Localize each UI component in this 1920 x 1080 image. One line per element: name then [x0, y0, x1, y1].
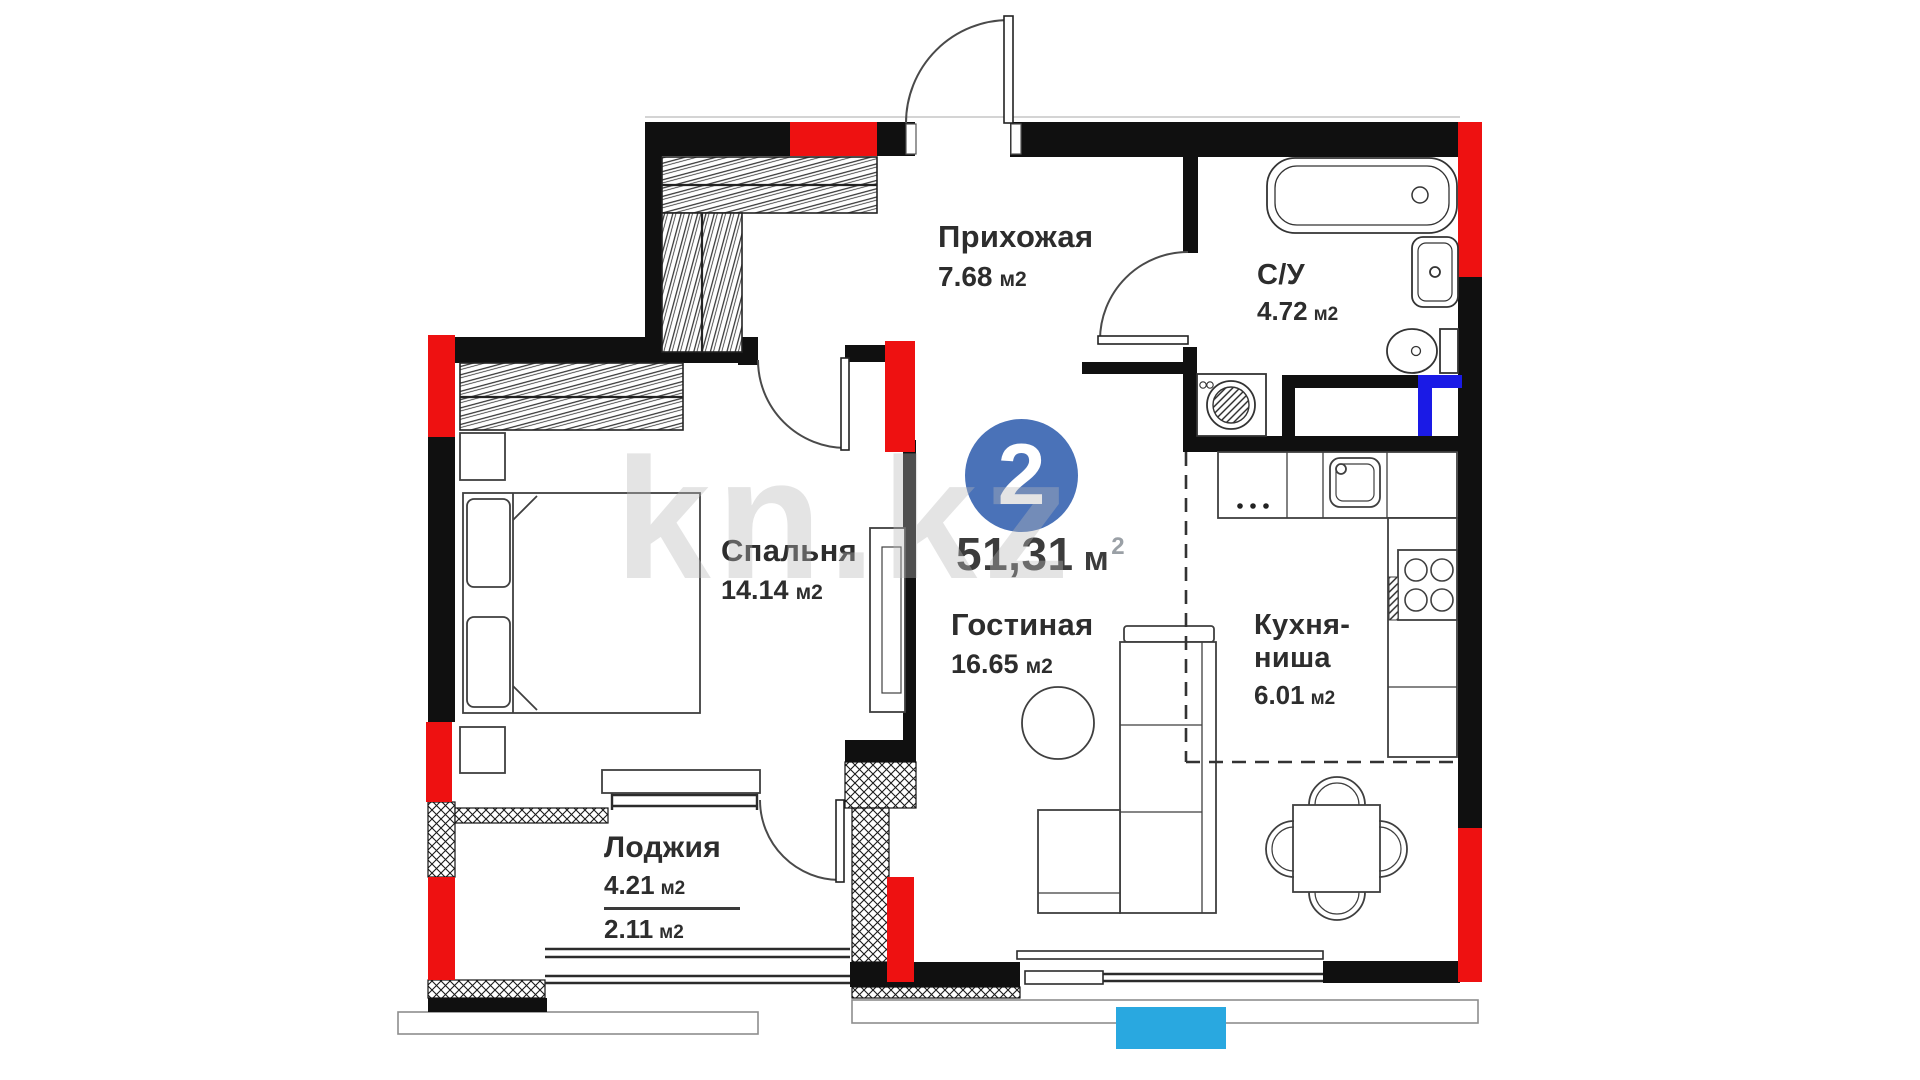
- room-area-unit: м2: [796, 581, 823, 604]
- total-area-value: 51,31: [956, 528, 1074, 580]
- wardrobes: [460, 157, 877, 430]
- room-area: 6.01: [1254, 680, 1305, 710]
- room-area-unit: м2: [1311, 688, 1336, 709]
- knob-dots: [1237, 503, 1269, 509]
- total-area-unit: м: [1084, 540, 1110, 578]
- room-area: 4.72: [1257, 296, 1308, 326]
- room-name: Гостиная: [951, 607, 1094, 643]
- room-name: Лоджия: [604, 831, 740, 866]
- window-bench: [602, 770, 760, 793]
- bathroom-sink: [1412, 237, 1458, 307]
- loggia-door: [760, 800, 844, 882]
- kitchen-sink: [1330, 458, 1380, 507]
- room-area-unit: м2: [661, 878, 686, 899]
- room-area: 14.14: [721, 575, 789, 605]
- room-name: С/У: [1257, 259, 1338, 292]
- room-name-line2: ниша: [1254, 642, 1350, 675]
- room-area: 4.21: [604, 870, 655, 900]
- dining-table-set: [1266, 777, 1407, 920]
- room-area-unit: м2: [1000, 268, 1027, 291]
- coffee-table: [1022, 687, 1094, 759]
- toilet: [1387, 329, 1458, 373]
- bedroom-furniture: [460, 433, 905, 793]
- room-name: Спальня: [721, 533, 857, 569]
- room-area-2: 2.11: [604, 914, 653, 944]
- room-area: 16.65: [951, 649, 1019, 679]
- room-count: 2: [998, 426, 1046, 525]
- room-label-kitchen: Кухня- ниша 6.01м2: [1254, 609, 1350, 711]
- room-label-bathroom: С/У 4.72м2: [1257, 259, 1338, 327]
- floor-plan: Прихожая 7.68м2 С/У 4.72м2 Спальня 14.14…: [0, 0, 1920, 1080]
- entrance-door: [906, 16, 1021, 154]
- bedroom-door: [758, 358, 849, 450]
- room-name: Прихожая: [938, 219, 1093, 255]
- room-count-badge: 2: [965, 419, 1078, 532]
- room-area: 7.68: [938, 261, 993, 292]
- washing-machine: [1197, 374, 1266, 436]
- bathtub: [1267, 158, 1457, 233]
- room-name: Кухня-: [1254, 609, 1350, 642]
- dresser: [870, 528, 905, 712]
- total-area-sup: 2: [1111, 533, 1125, 560]
- cooktop: [1389, 550, 1457, 620]
- nightstand: [460, 433, 505, 480]
- total-area: 51,31м2: [956, 527, 1125, 581]
- bathroom-door: [1098, 252, 1188, 344]
- kitchen-fixtures: [1218, 452, 1457, 757]
- room-area-2-unit: м2: [659, 922, 684, 943]
- room-label-bedroom: Спальня 14.14м2: [721, 533, 857, 606]
- room-area-unit: м2: [1314, 304, 1339, 325]
- loggia-area-divider: [604, 907, 740, 910]
- balcony-marker: [1116, 1007, 1226, 1049]
- room-label-hallway: Прихожая 7.68м2: [938, 219, 1093, 293]
- room-label-loggia: Лоджия 4.21м2 2.11м2: [604, 831, 740, 945]
- room-area-unit: м2: [1026, 655, 1053, 678]
- room-label-living-room: Гостиная 16.65м2: [951, 607, 1094, 680]
- nightstand: [460, 727, 505, 773]
- double-bed: [463, 493, 700, 713]
